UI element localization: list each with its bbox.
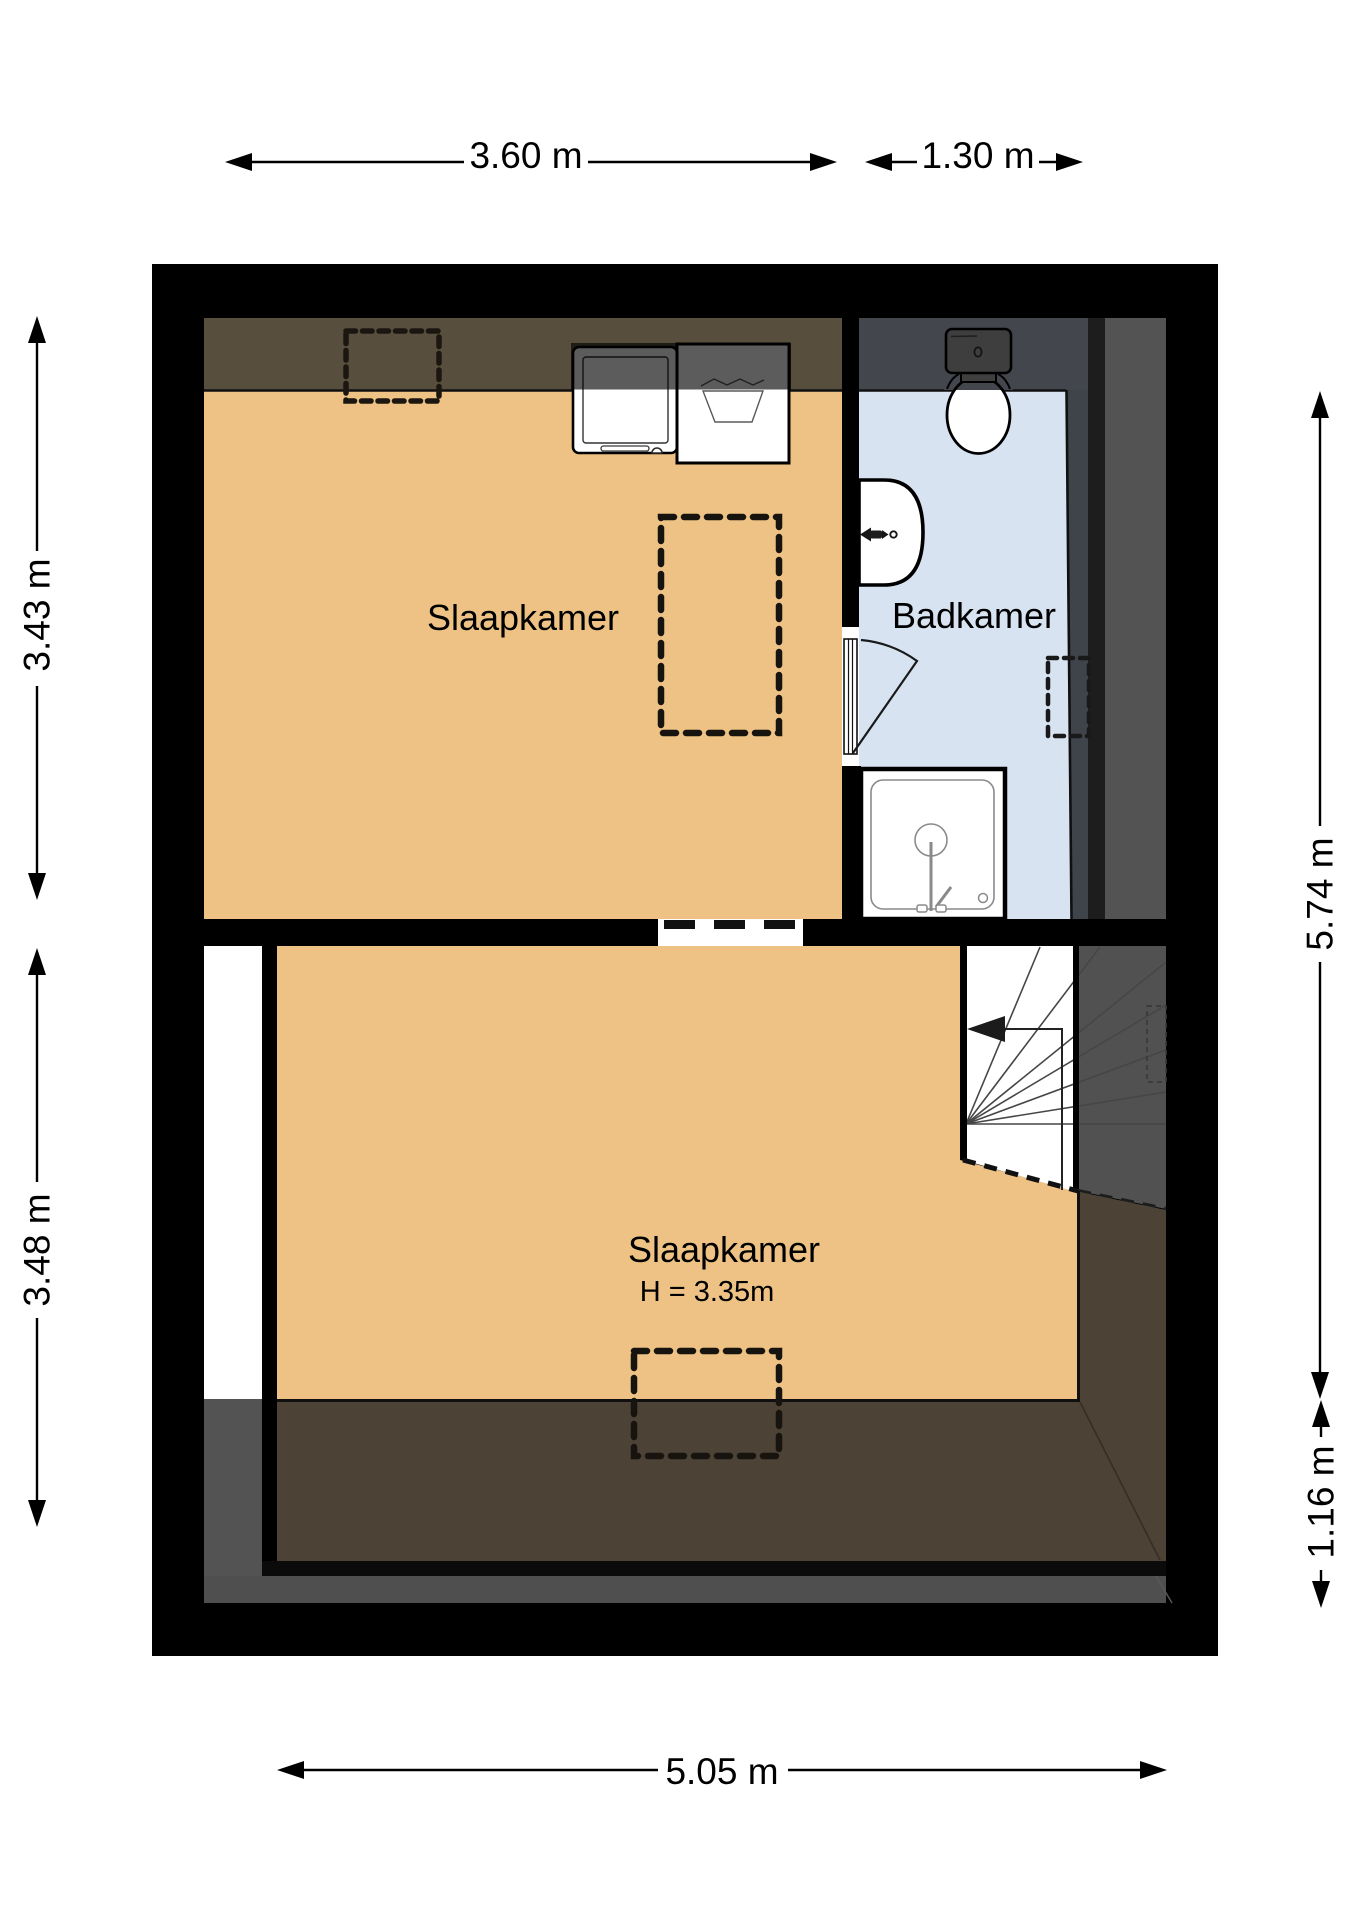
svg-text:5.05 m: 5.05 m [665,1751,778,1792]
svg-text:Badkamer: Badkamer [892,595,1056,636]
svg-text:1.16 m: 1.16 m [1301,1445,1342,1558]
svg-text:5.74 m: 5.74 m [1300,837,1341,950]
svg-text:1.30 m: 1.30 m [921,135,1034,176]
svg-text:Slaapkamer: Slaapkamer [427,597,619,638]
svg-text:3.48 m: 3.48 m [17,1193,58,1306]
svg-text:3.60 m: 3.60 m [469,135,582,176]
svg-text:H = 3.35m: H = 3.35m [640,1276,775,1308]
svg-text:Slaapkamer: Slaapkamer [628,1229,820,1270]
svg-text:3.43 m: 3.43 m [17,558,58,671]
